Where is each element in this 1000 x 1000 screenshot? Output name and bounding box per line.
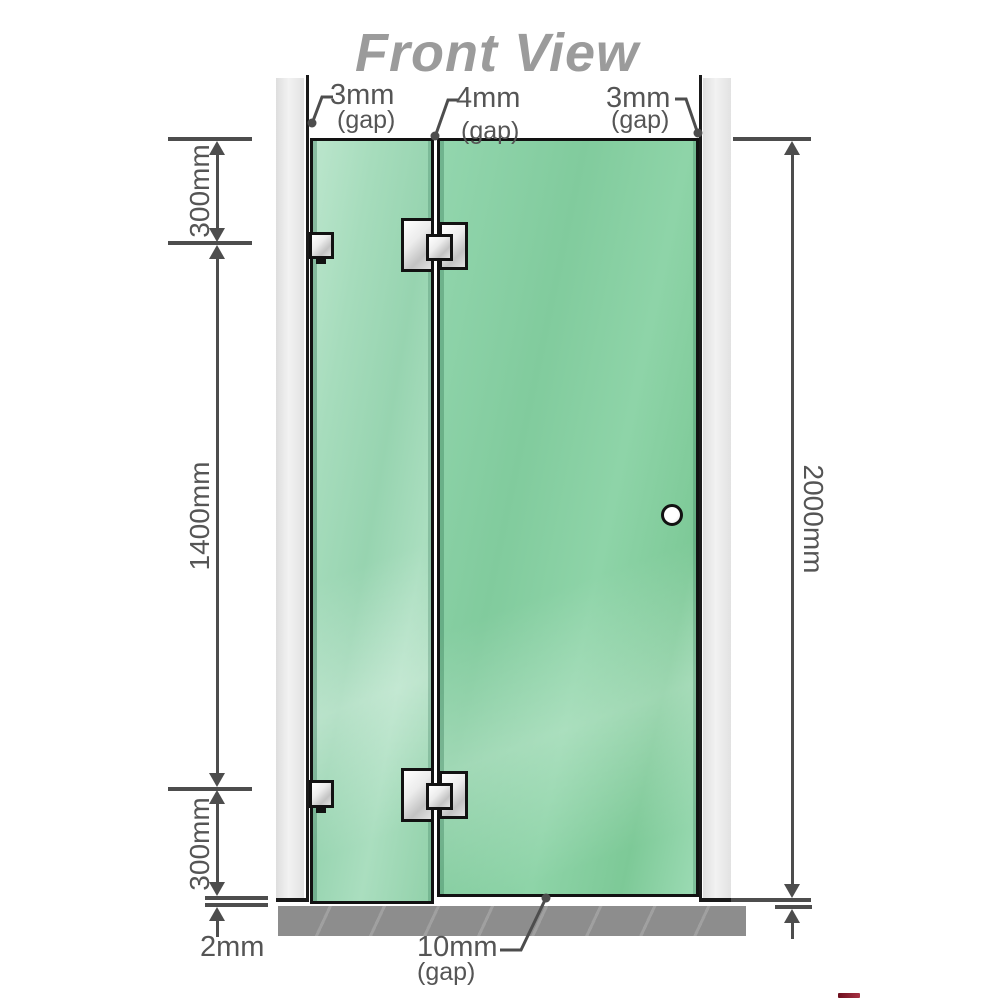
gap-label-middle-unit: (gap) [461, 119, 519, 144]
gap-label-left-unit: (gap) [337, 108, 395, 133]
gap-label-bottom-unit: (gap) [417, 960, 475, 985]
gap-label-middle-value: 4mm [456, 84, 520, 113]
leader-lines [0, 0, 1000, 1000]
gap-label-right-unit: (gap) [611, 108, 669, 133]
front-view-diagram: Front View [0, 0, 1000, 1000]
